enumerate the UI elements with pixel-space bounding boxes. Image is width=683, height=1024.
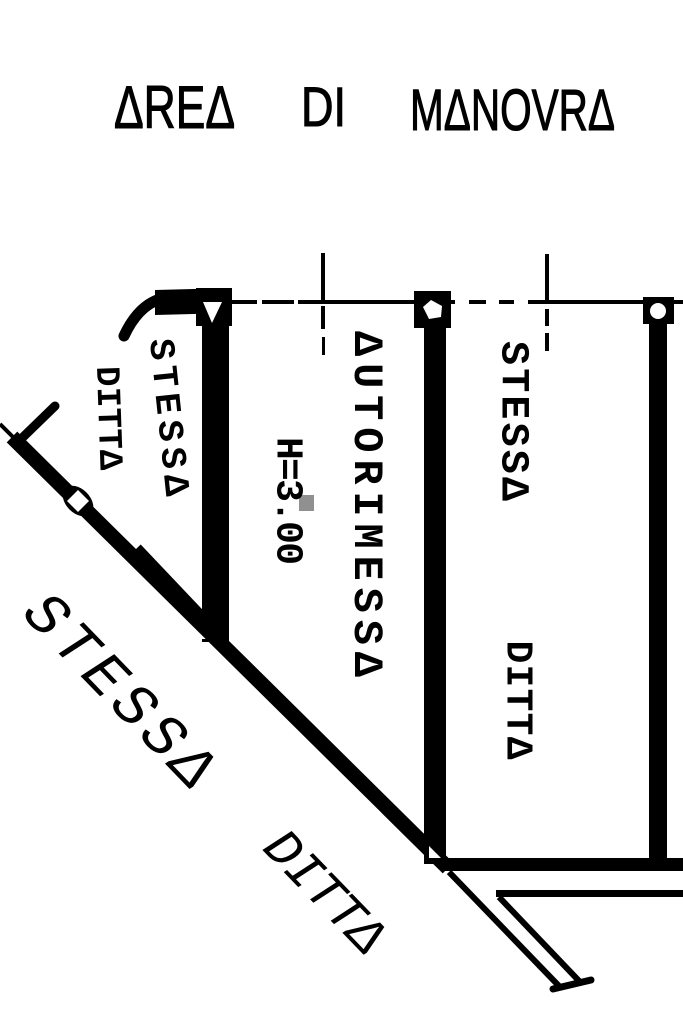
svg-text:ΔUTORIMESSΔ: ΔUTORIMESSΔ (342, 331, 390, 677)
svg-text:DI: DI (301, 75, 346, 138)
svg-text:H=3.00: H=3.00 (265, 437, 308, 565)
svg-text:DITTΔ: DITTΔ (495, 641, 538, 760)
svg-text:MΔNOVRΔ: MΔNOVRΔ (410, 78, 615, 143)
svg-text:ΔREΔ: ΔREΔ (114, 74, 235, 141)
svg-text:DITTΔ: DITTΔ (86, 366, 128, 472)
